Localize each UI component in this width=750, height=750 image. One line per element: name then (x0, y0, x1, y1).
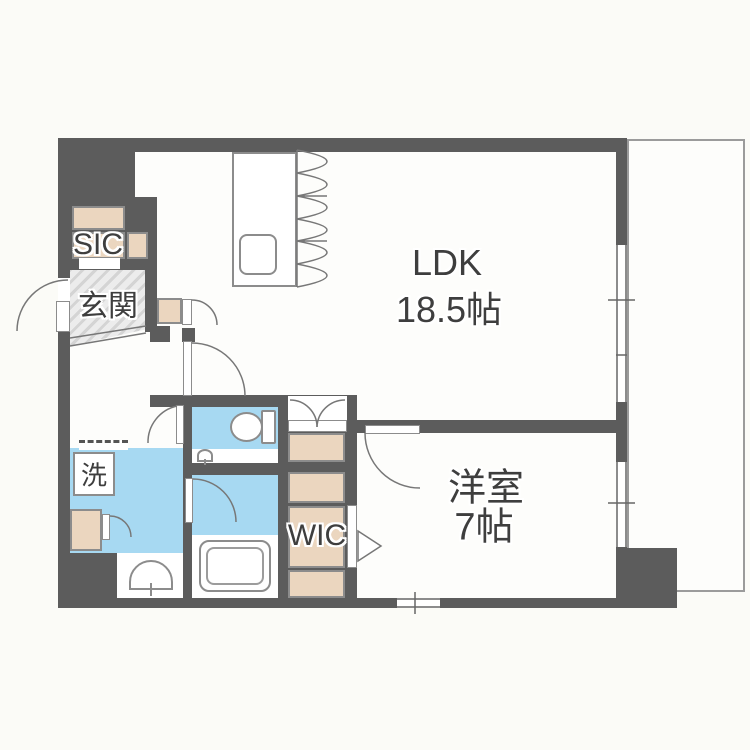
wall-kitchen-bottom-a (150, 326, 170, 342)
ldk-size-label: 18.5帖 (396, 281, 502, 333)
window-western-room (616, 462, 627, 547)
washroom-door-leaf (176, 405, 184, 444)
kitchen-sink-icon (239, 234, 277, 275)
toilet-tank-icon (261, 410, 276, 444)
window-ldk (616, 245, 627, 402)
wall-top (58, 138, 627, 152)
wic-shelf-1 (288, 433, 345, 462)
wall-toilet-left (183, 407, 192, 467)
wall-right-mid (616, 402, 627, 462)
hand-basin-icon (197, 449, 213, 462)
wic-doorway (288, 396, 347, 420)
wall-corner-block (70, 152, 135, 197)
wic-label: WIC (288, 519, 346, 553)
wall-left-lower (58, 332, 70, 608)
wall-toilet-bottom (183, 463, 288, 475)
cabinet-door-leaf (102, 514, 110, 540)
balcony (627, 139, 745, 592)
washroom-cabinet (70, 509, 102, 551)
wic-shelf-4 (288, 570, 345, 598)
western-room-size-label: 7帖 (454, 496, 513, 551)
entrance-label: 玄関 (78, 281, 138, 325)
laundry-threshold (79, 440, 128, 450)
sic-shelf-1 (72, 206, 125, 230)
front-door-leaf (56, 301, 70, 332)
corridor-door-leaf (183, 341, 192, 396)
western-room-door-leaf (365, 425, 420, 434)
toilet-bowl-icon (230, 412, 263, 442)
wic-threshold (288, 420, 347, 432)
hall-storage-door-leaf (182, 299, 192, 325)
wall-entrance-right (145, 268, 157, 332)
wall-washroom-filler (70, 553, 117, 598)
floor-plan: LDK 18.5帖 洋室 7帖 玄関 SIC WIC 洗 (0, 0, 750, 750)
wall-kitchen-bottom-b (182, 328, 195, 342)
wall-toilet-top (150, 395, 290, 407)
wall-bottom (58, 598, 677, 608)
wall-left-upper (58, 138, 70, 278)
wic-shelf-2 (288, 472, 345, 503)
sic-shelf-3 (127, 232, 148, 259)
laundry-label: 洗 (81, 456, 107, 493)
ldk-label: LDK (412, 242, 482, 284)
wall-pillar-bottom-right (618, 548, 677, 608)
bathroom-door-leaf (185, 478, 193, 523)
hall-storage-box (157, 298, 182, 324)
sic-label: SIC (73, 228, 123, 262)
wall-right-upper (616, 138, 627, 245)
bathtub-inner (206, 547, 264, 585)
bathroom-floor (192, 475, 278, 535)
window-bottom (397, 598, 440, 608)
wic-door-leaf (347, 505, 357, 568)
